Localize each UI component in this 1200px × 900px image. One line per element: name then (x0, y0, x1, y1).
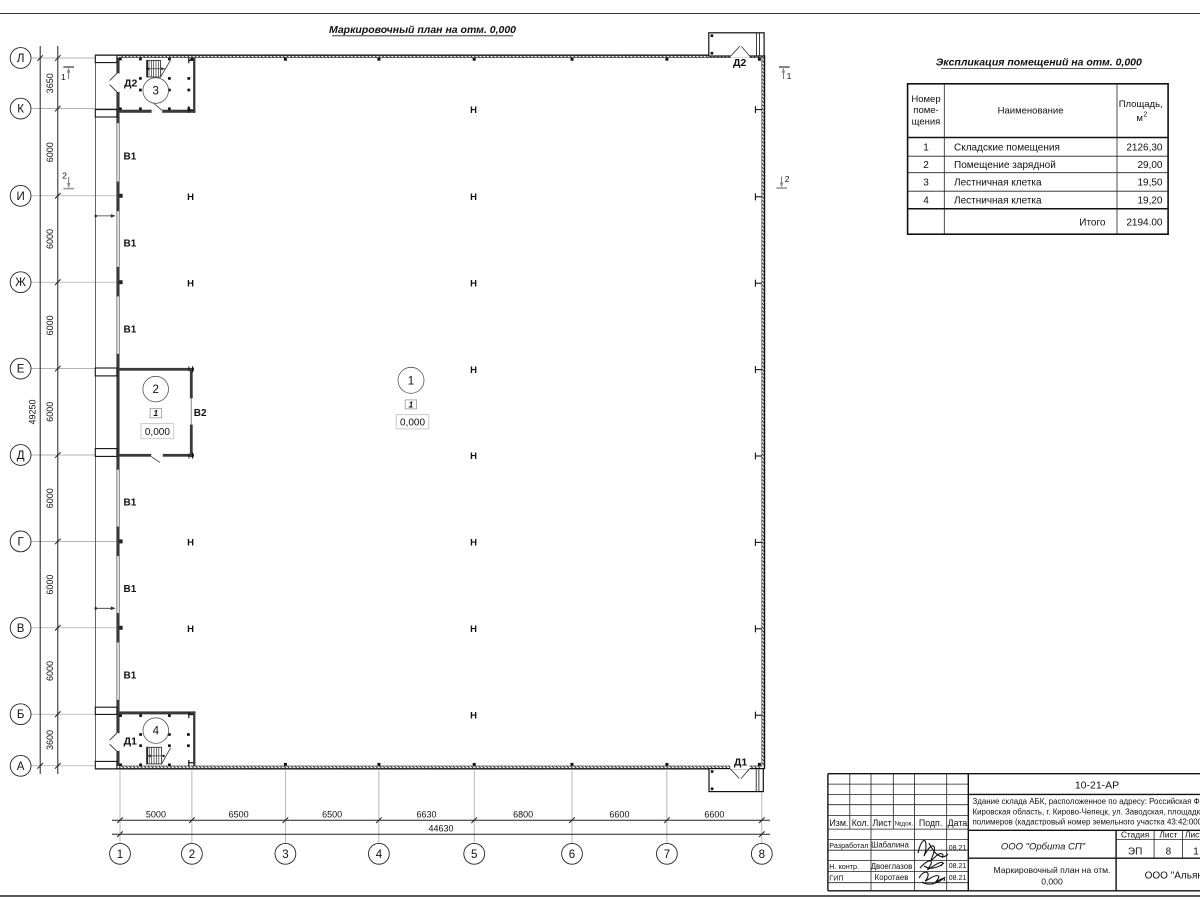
svg-text:Шабалина: Шабалина (871, 841, 909, 850)
svg-text:Лестничная клетка: Лестничная клетка (954, 178, 1042, 189)
svg-text:7: 7 (664, 849, 670, 861)
svg-text:Экспликация помещений на отм.: Экспликация помещений на отм. 0,000 (936, 57, 1142, 69)
svg-text:Кировская область, г. Кирово-Ч: Кировская область, г. Кирово-Чепецк, ул.… (973, 807, 1200, 816)
svg-text:6800: 6800 (513, 810, 533, 820)
svg-text:Н: Н (470, 710, 477, 721)
svg-text:Ж: Ж (15, 277, 26, 289)
svg-text:Помещение зарядной: Помещение зарядной (954, 160, 1056, 171)
svg-text:Изм.: Изм. (829, 818, 848, 828)
svg-text:Н: Н (187, 278, 194, 289)
svg-text:Д1: Д1 (124, 735, 137, 747)
svg-text:1: 1 (61, 72, 66, 82)
svg-text:3600: 3600 (45, 730, 55, 750)
svg-text:Кол.: Кол. (852, 818, 869, 828)
svg-text:Н: Н (470, 192, 477, 203)
svg-text:29,00: 29,00 (1137, 160, 1162, 171)
svg-text:Номер: Номер (911, 94, 940, 105)
svg-text:Л: Л (17, 53, 25, 65)
svg-text:Листов: Листов (1185, 830, 1200, 840)
svg-text:3650: 3650 (45, 73, 55, 93)
svg-text:6600: 6600 (609, 810, 629, 820)
svg-text:Б: Б (17, 709, 25, 721)
svg-text:В1: В1 (124, 325, 137, 336)
svg-text:Г: Г (17, 536, 24, 548)
svg-text:ГИП: ГИП (829, 873, 843, 882)
svg-text:6600: 6600 (704, 810, 724, 820)
svg-text:Н. контр.: Н. контр. (829, 862, 859, 871)
svg-text:Н: Н (187, 192, 194, 203)
svg-text:В1: В1 (124, 152, 137, 163)
svg-text:1: 1 (923, 143, 929, 154)
svg-text:0,000: 0,000 (145, 427, 170, 438)
svg-text:1: 1 (1193, 846, 1199, 857)
svg-text:Площадь,: Площадь, (1119, 99, 1163, 110)
svg-text:К: К (17, 104, 24, 116)
svg-text:19,20: 19,20 (1137, 195, 1162, 206)
svg-text:В1: В1 (124, 498, 137, 509)
svg-text:Двоеглазов: Двоеглазов (871, 862, 912, 871)
svg-text:Лист: Лист (1159, 830, 1177, 840)
svg-text:1: 1 (409, 400, 414, 410)
svg-text:0,000: 0,000 (1041, 877, 1063, 887)
svg-text:08.21: 08.21 (949, 875, 967, 882)
svg-text:Коротаев: Коротаев (875, 873, 909, 882)
svg-text:И: И (16, 191, 24, 203)
svg-text:8: 8 (1166, 846, 1172, 857)
svg-text:Н: Н (470, 538, 477, 549)
svg-text:1: 1 (117, 849, 123, 861)
svg-text:6000: 6000 (45, 575, 55, 595)
svg-text:4: 4 (923, 195, 929, 206)
svg-text:ООО "Орбита СП": ООО "Орбита СП" (1001, 841, 1086, 852)
svg-text:Н: Н (470, 365, 477, 376)
svg-text:Н: Н (470, 451, 477, 462)
svg-text:8: 8 (759, 849, 765, 861)
svg-text:Д1: Д1 (734, 756, 747, 768)
svg-text:10-21-АР: 10-21-АР (1075, 779, 1119, 791)
svg-text:6000: 6000 (45, 229, 55, 249)
svg-text:В1: В1 (124, 584, 137, 595)
svg-text:3: 3 (152, 86, 158, 98)
svg-text:Наименование: Наименование (998, 106, 1064, 117)
svg-text:08.21: 08.21 (949, 845, 967, 852)
svg-text:3: 3 (923, 178, 929, 189)
svg-text:3: 3 (282, 849, 288, 861)
svg-text:0,000: 0,000 (400, 418, 425, 429)
svg-text:А: А (17, 761, 25, 773)
svg-text:44630: 44630 (428, 824, 453, 834)
svg-text:ООО "Альянс Проект": ООО "Альянс Проект" (1145, 870, 1200, 881)
svg-text:Дата: Дата (948, 818, 968, 828)
svg-text:Д2: Д2 (124, 77, 137, 89)
svg-text:1: 1 (153, 408, 158, 418)
svg-text:Лестничная клетка: Лестничная клетка (954, 195, 1042, 206)
svg-text:2: 2 (189, 849, 195, 861)
svg-text:19,50: 19,50 (1137, 178, 1162, 189)
svg-text:Здание склада АБК, расположенн: Здание склада АБК, расположенное по адре… (973, 797, 1200, 806)
svg-text:6000: 6000 (45, 315, 55, 335)
svg-text:6500: 6500 (229, 810, 249, 820)
svg-text:2: 2 (923, 160, 929, 171)
svg-text:щения: щения (912, 117, 941, 128)
svg-text:6000: 6000 (45, 402, 55, 422)
svg-text:Н: Н (470, 624, 477, 635)
svg-text:№док.: №док. (895, 820, 914, 827)
svg-text:Складские помещения: Складские помещения (954, 143, 1060, 154)
svg-text:Разработал: Разработал (829, 841, 868, 850)
svg-text:1: 1 (408, 375, 414, 387)
svg-text:6: 6 (569, 849, 575, 861)
svg-text:2: 2 (152, 384, 158, 396)
svg-text:2194.00: 2194.00 (1126, 217, 1163, 228)
svg-text:2: 2 (62, 170, 67, 180)
svg-text:49250: 49250 (28, 399, 38, 424)
svg-text:Итого: Итого (1079, 217, 1106, 228)
svg-text:Стадия: Стадия (1121, 830, 1149, 840)
svg-text:6000: 6000 (45, 488, 55, 508)
svg-text:Лист: Лист (873, 818, 892, 828)
svg-text:Н: Н (187, 538, 194, 549)
svg-text:Маркировочный план на отм. 0,0: Маркировочный план на отм. 0,000 (329, 24, 516, 36)
svg-text:полимеров (кадастровый номер з: полимеров (кадастровый номер земельного … (973, 818, 1200, 827)
svg-text:1: 1 (787, 71, 792, 81)
svg-text:поме-: поме- (913, 105, 938, 116)
svg-text:Д2: Д2 (733, 57, 746, 69)
svg-text:Н: Н (187, 624, 194, 635)
svg-text:В1: В1 (124, 670, 137, 681)
svg-text:6630: 6630 (417, 810, 437, 820)
svg-text:Е: Е (17, 364, 25, 376)
svg-text:6000: 6000 (45, 142, 55, 162)
svg-text:08.21: 08.21 (949, 863, 967, 870)
svg-text:2126,30: 2126,30 (1126, 143, 1163, 154)
svg-text:Д: Д (17, 450, 25, 462)
svg-text:м: м (1136, 113, 1143, 124)
svg-text:Н: Н (470, 105, 477, 116)
svg-text:6500: 6500 (322, 810, 342, 820)
svg-text:2: 2 (785, 174, 790, 184)
svg-text:Подп.: Подп. (919, 818, 942, 828)
svg-text:4: 4 (376, 849, 383, 861)
svg-text:ЭП: ЭП (1128, 846, 1142, 857)
svg-text:Н: Н (470, 278, 477, 289)
svg-text:4: 4 (153, 726, 160, 738)
svg-text:В1: В1 (124, 238, 137, 249)
svg-text:2: 2 (1143, 112, 1147, 119)
svg-text:6000: 6000 (45, 661, 55, 681)
svg-text:В2: В2 (194, 408, 207, 419)
svg-text:Маркировочный план на отм.: Маркировочный план на отм. (994, 865, 1111, 875)
svg-text:5000: 5000 (146, 810, 166, 820)
svg-text:В: В (17, 623, 25, 635)
svg-text:5: 5 (471, 849, 477, 861)
